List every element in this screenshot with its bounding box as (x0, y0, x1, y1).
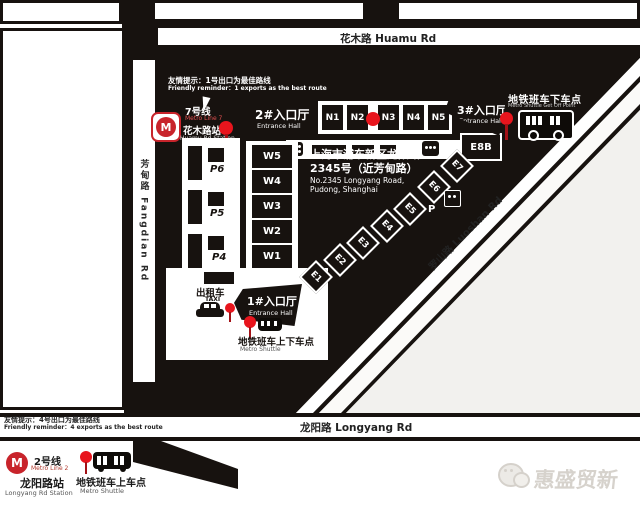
hall-w5: W5 (252, 145, 292, 168)
expo-access-map: 花木路 Huamu Rd 芳甸路 Fangdian Rd 龙阳路 Longyan… (0, 0, 640, 510)
small-building (208, 236, 224, 250)
parking-east: P (428, 204, 435, 215)
metro-logo-box: M (151, 112, 181, 142)
entrance-hall-2-en: Entrance Hall (257, 122, 301, 130)
hall-n1: N1 (322, 105, 343, 130)
hall-w4: W4 (252, 170, 292, 193)
small-building (204, 272, 234, 284)
city-block-west (0, 28, 125, 410)
shuttle-bus-small-icon (258, 318, 282, 331)
south-road-wedge (133, 441, 238, 489)
small-building (188, 234, 202, 268)
city-block-n3 (396, 0, 640, 22)
wechat-icon (498, 463, 526, 488)
hall-n3: N3 (378, 105, 399, 130)
hall-w1: W1 (252, 245, 292, 268)
address-line2: 2345号（近芳甸路） (310, 162, 420, 176)
entrance-hall-1-cn: 1#入口厅 (247, 293, 297, 309)
city-block-nw1 (0, 0, 122, 24)
entrance-hall-1-en: Entrance Hall (249, 309, 293, 317)
pickup-bus-icon (93, 452, 131, 469)
address-line4: Pudong, Shanghai (310, 185, 420, 194)
facility-icon (422, 141, 439, 156)
address-line1: 上海市浦东新区龙阳路 (310, 148, 420, 162)
line7-label-en: Metro Line 7 (185, 115, 222, 122)
longyang-road-south-line (0, 437, 640, 441)
huamu-road-label: 花木路 Huamu Rd (340, 31, 436, 46)
small-building (188, 146, 202, 180)
fangdian-road-label: 芳甸路 Fangdian Rd (138, 159, 151, 282)
shuttle-updown-en: Metro Shuttle (240, 346, 281, 353)
reminder-bottom-en: Friendly reminder：4 exports as the best … (4, 424, 163, 431)
shuttle-pickup-en: Metro Shuttle (80, 487, 124, 495)
hall-w3: W3 (252, 195, 292, 218)
huamu-pin-icon (219, 121, 233, 135)
city-block-n2 (152, 0, 366, 22)
venue-address: 上海市浦东新区龙阳路 2345号（近芳甸路） No.2345 Longyang … (310, 148, 420, 194)
shuttle-dropoff-en: Metro Shuttle Get Off Point (508, 103, 575, 109)
reminder-top: 友情提示：1号出口为最佳路线 Friendly reminder：1 expor… (168, 76, 327, 92)
longyang-station-en: Longyang Rd Station (5, 489, 73, 497)
reminder-bottom-cn: 友情提示：4号出口为最佳路线 (4, 416, 163, 424)
watermark-text: 惠盛贸新 (532, 464, 619, 494)
taxi-car-icon (196, 302, 224, 320)
entrance-hall-2-cn: 2#入口厅 (255, 106, 309, 123)
small-building (208, 192, 224, 206)
reminder-bottom: 友情提示：4号出口为最佳路线 Friendly reminder：4 expor… (4, 416, 163, 431)
fangdian-road-surface: 芳甸路 Fangdian Rd (133, 60, 155, 382)
facility-icon (444, 190, 461, 207)
metro-logo-icon: M (156, 117, 176, 137)
north-red-dot-icon (366, 112, 380, 126)
taxi-pin-stem (229, 312, 231, 322)
small-building (188, 190, 202, 224)
dropoff-pin-stem (505, 124, 508, 140)
parking-p6: P6 (210, 164, 224, 175)
hall-w2: W2 (252, 220, 292, 243)
hall-n2: N2 (347, 105, 368, 130)
west-service-lane: P6 P5 P4 (182, 138, 240, 272)
parking-p4: P4 (212, 252, 226, 263)
small-building (208, 148, 224, 162)
address-line3: No.2345 Longyang Road, (310, 176, 420, 185)
parking-p5: P5 (210, 208, 224, 219)
reminder-top-cn: 友情提示：1号出口为最佳路线 (168, 76, 327, 85)
metro-logo-icon: M (6, 452, 28, 474)
hall-e8b: E8B (460, 133, 502, 161)
entrance-hall-2-banner: 2#入口厅 Entrance Hall (242, 97, 320, 140)
longyang-road-label: 龙阳路 Longyang Rd (300, 420, 412, 435)
line2-label-en: Metro Line 2 (31, 465, 68, 472)
reminder-top-en: Friendly reminder：1 exports as the best … (168, 85, 327, 92)
pickup-pin-stem (85, 462, 87, 474)
hall-n4: N4 (403, 105, 424, 130)
shuttle-bus-icon (518, 110, 574, 140)
